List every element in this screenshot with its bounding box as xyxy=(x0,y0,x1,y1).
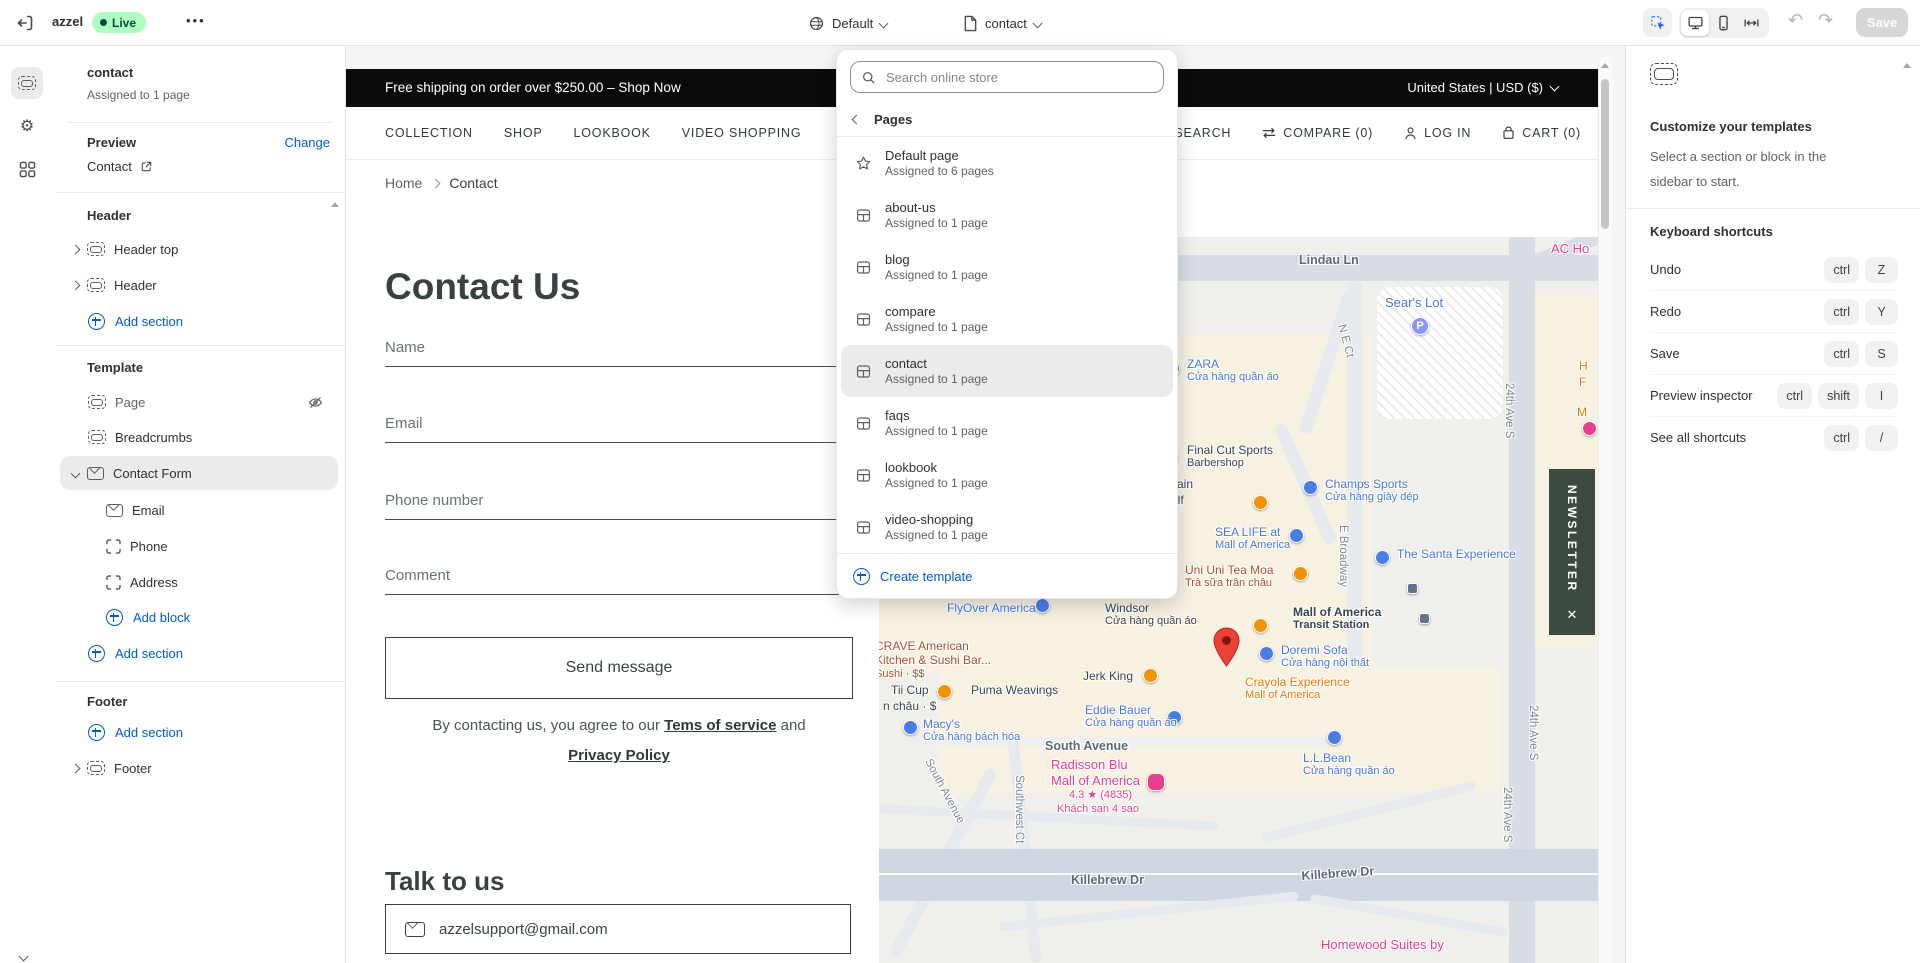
search-icon xyxy=(861,70,876,85)
map-label: L.L.BeanCửa hàng quần áo xyxy=(1303,751,1395,779)
name-field[interactable] xyxy=(385,339,853,367)
search-box xyxy=(850,61,1164,93)
map-label: 4.3 ★ (4835) xyxy=(1069,789,1132,802)
key-chip: / xyxy=(1865,425,1898,451)
nav-compare-button[interactable]: COMPARE (0) xyxy=(1261,126,1373,140)
send-message-button[interactable]: Send message xyxy=(385,637,853,699)
email-field[interactable] xyxy=(385,415,853,443)
template-icon xyxy=(853,311,873,328)
map-poi-blue-icon xyxy=(1035,598,1050,616)
envelope-icon xyxy=(106,504,123,517)
preview-page-link[interactable]: Contact xyxy=(87,159,153,174)
talk-to-us-title: Talk to us xyxy=(385,866,504,897)
sidebar-item-breadcrumbs[interactable]: Breadcrumbs xyxy=(60,420,338,454)
more-actions-button[interactable]: ••• xyxy=(186,13,206,28)
map-label: Doremi SofaCửa hàng nội thất xyxy=(1281,643,1369,671)
privacy-policy-link[interactable]: Privacy Policy xyxy=(568,747,670,764)
shortcut-row-undo: Undo ctrlZ xyxy=(1650,249,1898,291)
map-label: Eddie BauerCửa hàng quần áo xyxy=(1085,703,1177,731)
sidebar-item-header[interactable]: Header xyxy=(60,268,338,302)
preview-inspector-button[interactable] xyxy=(1643,8,1672,37)
panel-scroll-up-indicator xyxy=(331,202,339,207)
map-poi-orange-icon xyxy=(1253,618,1268,636)
map-label: Killebrew Dr xyxy=(1071,873,1144,888)
star-icon xyxy=(853,155,873,172)
map-label: Macy'sCửa hàng bách hóa xyxy=(923,717,1020,745)
template-dropdown: Pages Default page Assigned to 6 pages xyxy=(836,49,1178,599)
map-label: Puma Weavings xyxy=(971,683,1058,697)
plus-circle-icon xyxy=(853,568,870,585)
scrollbar-up-arrow[interactable] xyxy=(1601,63,1609,68)
sections-icon xyxy=(18,76,36,90)
map-label: WindsorCửa hàng quần áo xyxy=(1105,601,1197,629)
desktop-preview-button[interactable] xyxy=(1681,10,1709,36)
exit-editor-button[interactable] xyxy=(10,8,39,37)
nav-link-lookbook[interactable]: LOOKBOOK xyxy=(574,126,651,140)
sidebar-item-page[interactable]: Page xyxy=(60,385,338,419)
page-selector[interactable]: contact xyxy=(955,9,1049,37)
template-icon xyxy=(853,207,873,224)
chevron-down-icon xyxy=(1032,18,1042,28)
map-label: Uni Uni Tea MoaTrà sữa trân châu xyxy=(1185,563,1274,591)
chevron-down-icon xyxy=(1550,81,1560,91)
template-group-title: Template xyxy=(87,360,143,375)
hidden-eye-icon[interactable] xyxy=(307,394,324,411)
shortcut-row-redo: Redo ctrlY xyxy=(1650,291,1898,333)
map-poi-parking-icon: P xyxy=(1411,317,1429,335)
template-list-item[interactable]: faqs Assigned to 1 page xyxy=(841,397,1173,449)
divider xyxy=(55,192,345,193)
add-section-button-template[interactable]: Add section xyxy=(60,636,338,670)
map-label: Jerk King xyxy=(1083,669,1133,683)
map-poi-transit-icon xyxy=(1419,613,1430,627)
theme-name: Default xyxy=(832,16,873,31)
section-icon xyxy=(1650,63,1678,85)
plus-circle-icon xyxy=(106,609,123,626)
pages-back-row[interactable]: Pages xyxy=(837,102,1177,136)
template-icon xyxy=(853,259,873,276)
section-icon xyxy=(88,395,106,409)
template-list-item[interactable]: Default page Assigned to 6 pages xyxy=(841,137,1173,189)
plus-circle-icon xyxy=(88,313,105,330)
template-list-item[interactable]: lookbook Assigned to 1 page xyxy=(841,449,1173,501)
map-label: Southwest Ct xyxy=(1011,775,1025,843)
sidebar-block-email[interactable]: Email xyxy=(60,493,338,527)
sidebar-block-address[interactable]: Address xyxy=(60,565,338,599)
map-label: M xyxy=(1577,405,1587,419)
key-chip: shift xyxy=(1818,383,1859,409)
panel-scroll-up-indicator xyxy=(1903,63,1911,68)
add-section-button-header[interactable]: Add section xyxy=(60,304,338,338)
sections-panel: contact Assigned to 1 page Preview Chang… xyxy=(55,45,346,963)
map-poi-blue-icon xyxy=(1327,730,1342,748)
nav-link-collection[interactable]: COLLECTION xyxy=(385,126,473,140)
nav-login-button[interactable]: LOG IN xyxy=(1403,125,1471,141)
settings-panel: Customize your templates Select a sectio… xyxy=(1625,45,1920,963)
map-poi-orange-icon xyxy=(937,684,952,702)
section-icon xyxy=(87,242,105,256)
template-list-item[interactable]: compare Assigned to 1 page xyxy=(841,293,1173,345)
bag-icon xyxy=(1501,125,1516,141)
nav-search-button[interactable]: SEARCH xyxy=(1174,126,1231,140)
map-label: E Broadway xyxy=(1335,525,1349,587)
section-icon xyxy=(87,761,105,775)
app-blocks-icon xyxy=(19,161,36,178)
desktop-icon xyxy=(1687,15,1704,31)
shortcut-row-preview-inspector: Preview inspector ctrlshiftI xyxy=(1650,375,1898,417)
rail-apps-button[interactable] xyxy=(11,153,43,185)
template-list-item[interactable]: blog Assigned to 1 page xyxy=(841,241,1173,293)
nav-cart-button[interactable]: CART (0) xyxy=(1501,125,1581,141)
map-label: The Santa Experience xyxy=(1397,547,1516,561)
chevron-down-icon xyxy=(71,468,81,478)
shortcuts-title: Keyboard shortcuts xyxy=(1650,224,1773,239)
save-button[interactable]: Save xyxy=(1856,8,1908,37)
inspector-cursor-icon xyxy=(1649,14,1667,32)
map-label: FlyOver America xyxy=(947,601,1036,615)
change-preview-link[interactable]: Change xyxy=(284,135,330,150)
map-label: Radisson Blu Mall of America xyxy=(1051,757,1140,788)
map-poi-blue-icon xyxy=(1259,646,1274,664)
left-icon-rail: ⚙ xyxy=(0,45,55,963)
live-dot-icon xyxy=(100,19,107,26)
template-icon xyxy=(853,363,873,380)
comment-field[interactable] xyxy=(385,567,853,595)
section-icon xyxy=(88,430,106,444)
locale-selector[interactable]: United States | USD ($) xyxy=(1407,80,1558,95)
chevron-right-icon xyxy=(71,280,81,290)
scrollbar-thumb[interactable] xyxy=(1601,79,1609,229)
theme-editor-app: azzel Live ••• Default contact xyxy=(0,0,1920,963)
panel-doc-subtitle: Assigned to 1 page xyxy=(87,88,190,102)
theme-icon xyxy=(808,15,825,32)
map-label: South Avenue xyxy=(1045,739,1128,754)
map-label: 24th Ave S xyxy=(1499,787,1513,842)
map-poi-blue-icon xyxy=(1303,480,1318,498)
map-label: ZARACửa hàng quần áo xyxy=(1187,357,1279,385)
map-label: n châu · $ xyxy=(883,699,936,713)
key-chip: Y xyxy=(1865,299,1898,325)
gear-icon: ⚙ xyxy=(20,116,34,136)
rail-settings-button[interactable]: ⚙ xyxy=(11,110,43,142)
chevron-right-icon xyxy=(431,178,441,188)
map-poi-transit-icon xyxy=(1407,583,1418,597)
template-list-item[interactable]: video-shopping Assigned to 1 page xyxy=(841,501,1173,553)
key-chip: ctrl xyxy=(1824,257,1859,283)
newsletter-tab[interactable]: NEWSLETTER ✕ xyxy=(1549,469,1595,635)
support-email-link[interactable]: azzelsupport@gmail.com xyxy=(385,904,851,954)
preview-label: Preview xyxy=(87,135,136,150)
template-icon xyxy=(853,519,873,536)
map-label: Crayola ExperienceMall of America xyxy=(1245,675,1350,703)
map-poi-orange-icon xyxy=(1143,668,1158,686)
nav-link-video-shopping[interactable]: VIDEO SHOPPING xyxy=(682,126,802,140)
terms-of-service-link[interactable]: Tems of service xyxy=(664,717,776,734)
map-poi-blue-icon xyxy=(1289,528,1304,546)
block-brackets-icon xyxy=(106,539,121,554)
map-label: F xyxy=(1579,375,1586,389)
map-poi-hotel-icon xyxy=(1147,773,1165,794)
map-label: 24th Ave S xyxy=(1501,383,1515,438)
breadcrumb: Home Contact xyxy=(385,175,498,191)
key-chip: ctrl xyxy=(1824,425,1859,451)
device-preview-toggle xyxy=(1679,8,1769,38)
chevron-down-icon xyxy=(879,18,889,28)
map-poi-orange-icon xyxy=(1293,566,1308,584)
map-label: Killebrew Dr xyxy=(1301,864,1375,884)
map-label: AC Ho xyxy=(1551,241,1589,257)
exit-icon xyxy=(15,13,35,33)
phone-field[interactable] xyxy=(385,492,853,520)
shortcut-row-see-all: See all shortcuts ctrl/ xyxy=(1650,417,1898,458)
mobile-icon xyxy=(1716,15,1731,31)
fullwidth-icon xyxy=(1743,15,1760,31)
create-template-button[interactable]: Create template xyxy=(837,554,1177,598)
map-poi-pin-icon xyxy=(1213,627,1240,670)
compare-arrows-icon xyxy=(1261,126,1277,140)
breadcrumb-home-link[interactable]: Home xyxy=(385,175,422,191)
key-chip: ctrl xyxy=(1824,341,1859,367)
external-link-icon xyxy=(140,160,153,173)
key-chip: ctrl xyxy=(1777,383,1812,409)
template-icon xyxy=(853,467,873,484)
divider xyxy=(55,345,345,346)
map-poi-pink-icon xyxy=(1582,421,1597,439)
section-icon xyxy=(87,278,105,292)
divider xyxy=(55,681,345,682)
envelope-icon xyxy=(87,467,104,480)
mobile-preview-button[interactable] xyxy=(1709,10,1737,36)
breadcrumb-current: Contact xyxy=(449,175,497,191)
page-icon xyxy=(963,15,978,32)
add-section-button-footer[interactable]: Add section xyxy=(60,715,338,749)
header-group-title: Header xyxy=(87,208,131,223)
store-name: azzel xyxy=(52,14,83,29)
redo-button[interactable]: ↷ xyxy=(1818,11,1833,29)
key-chip: Z xyxy=(1865,257,1898,283)
nav-link-shop[interactable]: SHOP xyxy=(504,126,543,140)
search-input[interactable] xyxy=(884,69,1153,86)
envelope-icon xyxy=(405,922,425,937)
consent-text: By contacting us, you agree to our Tems … xyxy=(385,711,853,771)
map-label: Homewood Suites by xyxy=(1321,937,1444,953)
template-list-item[interactable]: about-us Assigned to 1 page xyxy=(841,189,1173,241)
customize-subtitle: Select a section or block in the sidebar… xyxy=(1650,144,1860,194)
map-label: Tii Cup xyxy=(891,683,929,697)
footer-group-title: Footer xyxy=(87,694,127,709)
topbar: azzel Live ••• Default contact xyxy=(0,0,1920,46)
shortcuts-list: Undo ctrlZ Redo ctrlY Save ctrlS Preview… xyxy=(1650,249,1898,458)
map-label: Khách sạn 4 sao xyxy=(1057,803,1139,816)
divider xyxy=(1626,208,1920,209)
map-label: South Avenue xyxy=(921,757,967,827)
map-poi-orange-icon xyxy=(1253,495,1268,513)
newsletter-label: NEWSLETTER xyxy=(1565,485,1579,593)
panel-doc-title: contact xyxy=(87,65,133,80)
undo-button[interactable]: ↶ xyxy=(1788,11,1803,29)
page-title: Contact Us xyxy=(385,266,580,308)
map-label: Sear's Lot xyxy=(1385,295,1443,311)
chevron-right-icon xyxy=(71,244,81,254)
chevron-right-icon xyxy=(71,763,81,773)
sidebar-block-phone[interactable]: Phone xyxy=(60,529,338,563)
template-icon xyxy=(853,415,873,432)
map-label: CRAVE American Kitchen & Sushi Bar...Sus… xyxy=(879,639,991,681)
map-label: Lindau Ln xyxy=(1299,253,1359,268)
map-label: Mall of AmericaTransit Station xyxy=(1293,605,1381,633)
person-icon xyxy=(1403,125,1418,141)
key-chip: S xyxy=(1865,341,1898,367)
map-label: 24th Ave S xyxy=(1525,705,1539,760)
block-brackets-icon xyxy=(106,575,121,590)
site-scrollbar[interactable] xyxy=(1598,57,1612,963)
plus-circle-icon xyxy=(88,645,105,662)
sidebar-item-contact-form[interactable]: Contact Form xyxy=(60,456,338,490)
fullwidth-preview-button[interactable] xyxy=(1737,10,1765,36)
divider xyxy=(68,122,332,123)
map-label: SEA LIFE atMall of America xyxy=(1215,525,1290,553)
template-list-item[interactable]: contact Assigned to 1 page xyxy=(841,345,1173,397)
map-poi-blue-icon xyxy=(1375,550,1390,568)
page-name: contact xyxy=(985,16,1027,31)
newsletter-close-icon[interactable]: ✕ xyxy=(1567,607,1578,623)
announcement-text[interactable]: Free shipping on order over $250.00 – Sh… xyxy=(385,80,681,95)
theme-selector[interactable]: Default xyxy=(800,9,895,37)
key-chip: I xyxy=(1865,383,1898,409)
add-block-button[interactable]: Add block xyxy=(60,600,338,634)
plus-circle-icon xyxy=(88,724,105,741)
sidebar-item-header-top[interactable]: Header top xyxy=(60,232,338,266)
shortcut-row-save: Save ctrlS xyxy=(1650,333,1898,375)
map-label: Champs SportsCửa hàng giày dép xyxy=(1325,477,1419,505)
map-label: H xyxy=(1579,359,1588,373)
customize-title: Customize your templates xyxy=(1650,119,1812,134)
sidebar-item-footer[interactable]: Footer xyxy=(60,751,338,785)
map-label: N E Ct xyxy=(1334,323,1356,359)
rail-scroll-down-indicator xyxy=(20,947,27,963)
live-status-badge: Live xyxy=(92,12,146,33)
rail-sections-button[interactable] xyxy=(11,67,43,99)
key-chip: ctrl xyxy=(1824,299,1859,325)
template-list: Default page Assigned to 6 pages about-u… xyxy=(837,137,1177,553)
map-label: Final Cut SportsBarbershop xyxy=(1187,443,1273,471)
map-poi-blue-icon xyxy=(903,720,918,738)
chevron-left-icon xyxy=(852,114,862,124)
